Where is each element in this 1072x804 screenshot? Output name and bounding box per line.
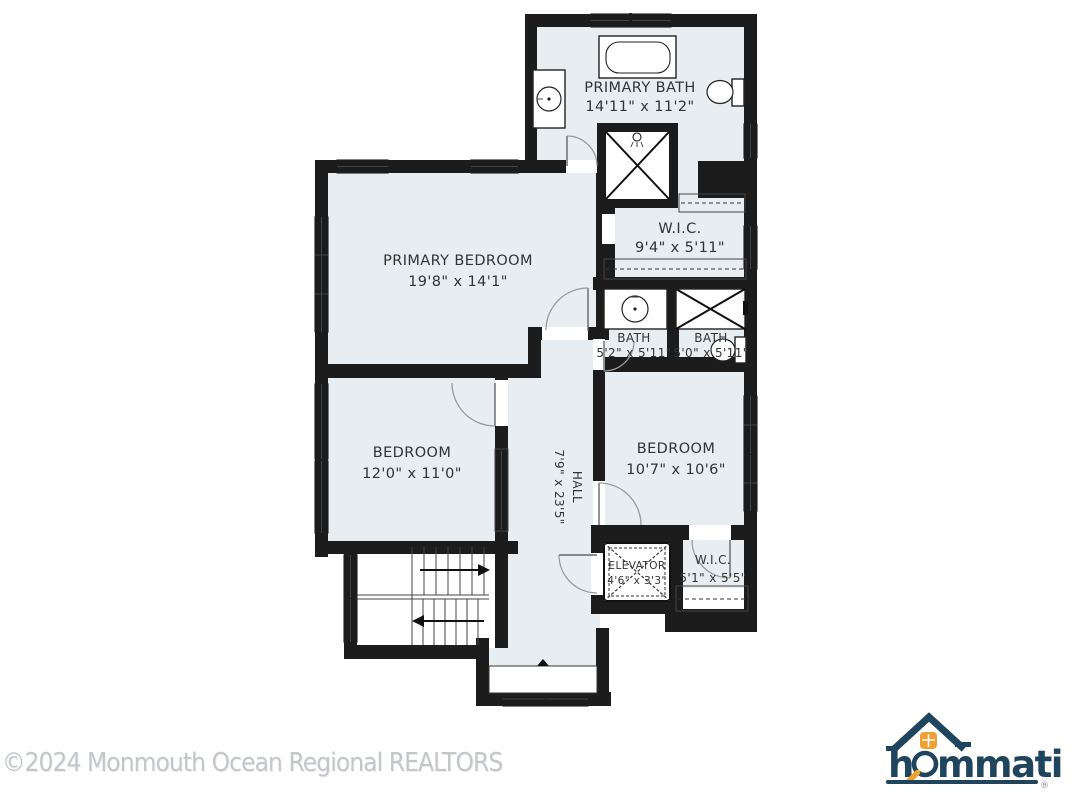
room-dims: 5'1" x 5'5" xyxy=(679,571,746,585)
room-dims: 14'11" x 11'2" xyxy=(585,99,694,115)
room-dims: 10'7" x 10'6" xyxy=(626,462,726,478)
shower-fixture xyxy=(606,132,669,199)
sink-vanity-fixture xyxy=(533,70,565,128)
logo-text-rest: mmati xyxy=(937,743,1062,786)
shower-fixture xyxy=(676,289,748,329)
staircase xyxy=(357,547,490,645)
room-label: W.I.C. xyxy=(695,553,731,567)
room-dims: 5'0" x 5'11" xyxy=(673,346,748,360)
room-dims: 9'4" x 5'11" xyxy=(635,240,725,256)
toilet-fixture xyxy=(707,79,744,106)
sink-vanity-fixture xyxy=(604,289,667,329)
stair-arrow-down-icon xyxy=(412,615,424,627)
room-bedroom-left xyxy=(320,375,505,547)
room-dims: 7'9" x 23'5" xyxy=(552,449,566,524)
room-label: BEDROOM xyxy=(373,445,452,461)
room-label: PRIMARY BEDROOM xyxy=(383,253,533,269)
room-label: BEDROOM xyxy=(637,441,716,457)
copyright-watermark: ©2024 Monmouth Ocean Regional REALTORS xyxy=(2,748,502,778)
registered-mark: ® xyxy=(1040,781,1049,791)
floor-plan-page: PRIMARY BATH 14'11" x 11'2" W.I.C. 9'4" … xyxy=(0,0,1072,804)
room-label: W.I.C. xyxy=(658,221,701,237)
room-label: PRIMARY BATH xyxy=(584,80,695,96)
room-dims: 12'0" x 11'0" xyxy=(362,466,462,482)
room-dims: 4'6" x 3'3" xyxy=(607,575,666,587)
floor-plan-drawing: PRIMARY BATH 14'11" x 11'2" W.I.C. 9'4" … xyxy=(0,0,1072,804)
room-label: ELEVATOR xyxy=(608,560,665,572)
bathtub-fixture xyxy=(599,36,676,78)
elevator-cab xyxy=(604,543,670,601)
room-label: BATH xyxy=(694,331,727,345)
room-label: HALL xyxy=(570,471,584,503)
room-dims: 5'2" x 5'11" xyxy=(596,346,671,360)
hommati-logo: h mmati ® xyxy=(886,717,1062,791)
room-label: BATH xyxy=(617,331,650,345)
room-dims: 19'8" x 14'1" xyxy=(408,274,508,290)
